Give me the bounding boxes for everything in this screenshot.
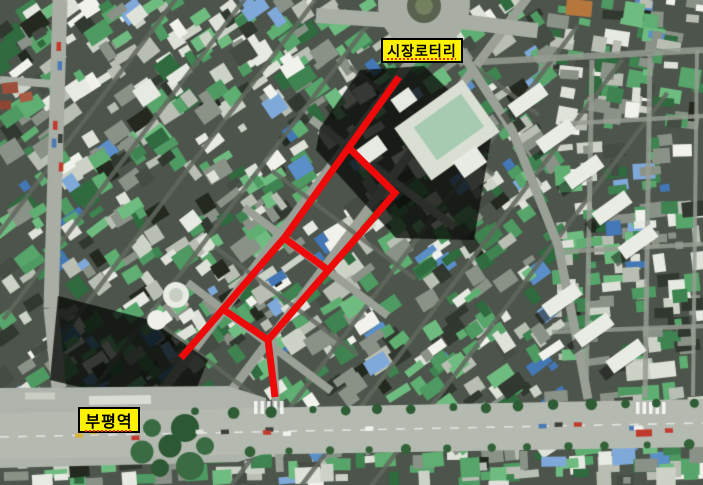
label-market-rotary: 시장로터리: [381, 38, 463, 63]
label-bupyeong-station: 부평역: [78, 407, 140, 433]
map-viewport: 시장로터리 부평역: [0, 0, 703, 485]
label-bupyeong-station-text: 부평역: [85, 408, 132, 432]
label-market-rotary-text: 시장로터리: [387, 41, 456, 61]
